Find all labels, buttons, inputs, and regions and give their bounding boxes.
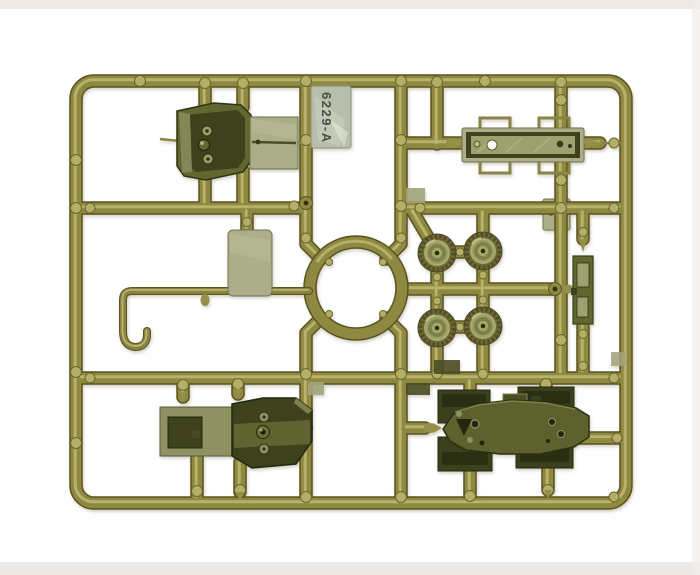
road-wheel [464,232,502,270]
tag-label: 6229-A [319,92,334,144]
sprue-photo: 6229-A [0,0,700,575]
sprue-photo-canvas: 6229-A [0,0,700,575]
photo-edge-top [0,0,700,9]
photo-edge-bottom [0,562,700,575]
exhaust-bar-part [571,256,593,324]
road-wheel [464,307,502,345]
photo-edge-right [692,0,700,575]
rectangular-plate-part [228,230,272,296]
road-wheel [418,309,456,347]
part-number-tag: 6229-A [311,86,351,148]
road-wheel [418,234,456,272]
